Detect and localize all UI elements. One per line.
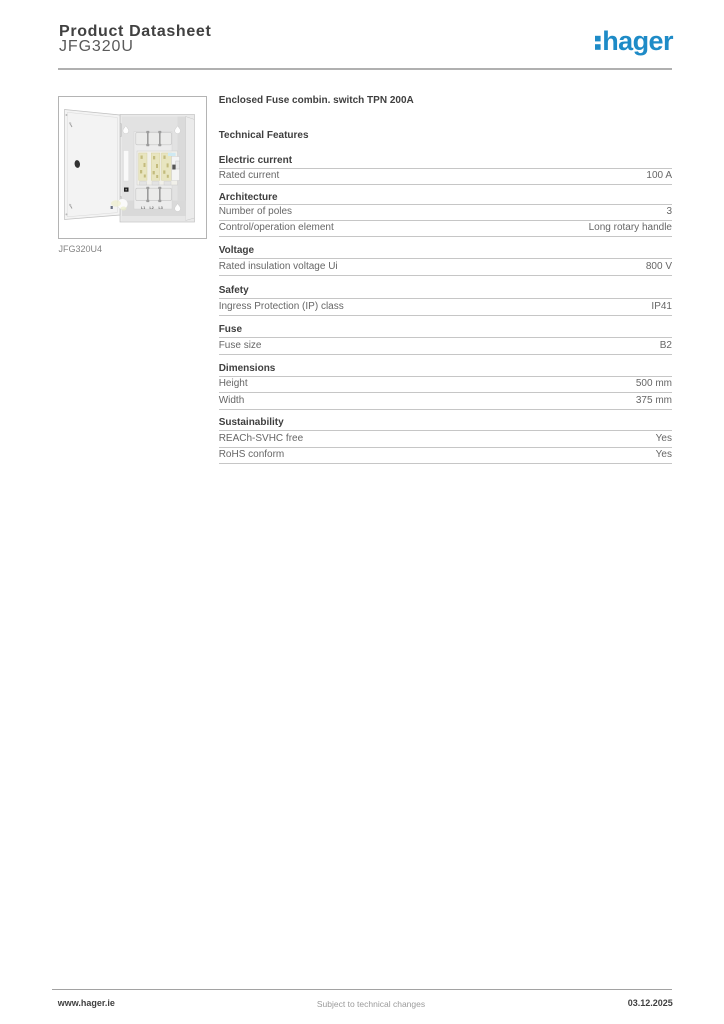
svg-text:L2: L2 <box>150 206 154 210</box>
svg-text:hager: hager <box>602 28 674 56</box>
svg-text:L3: L3 <box>159 206 163 210</box>
svg-text:L1: L1 <box>141 206 145 210</box>
